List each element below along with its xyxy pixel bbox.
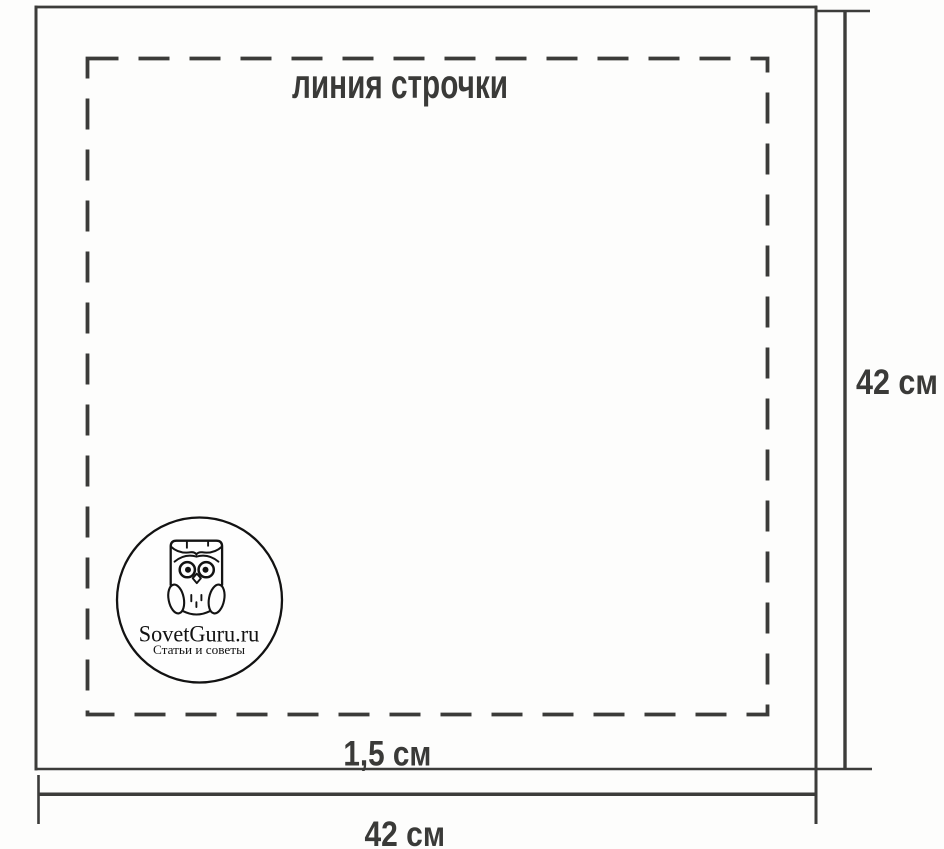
svg-text:линия строчки: линия строчки [292,61,508,107]
svg-text:42 см: 42 см [365,815,446,849]
svg-text:42 см: 42 см [856,363,938,402]
svg-text:Статьи и советы: Статьи и советы [153,642,245,657]
svg-text:1,5 см: 1,5 см [343,735,431,774]
